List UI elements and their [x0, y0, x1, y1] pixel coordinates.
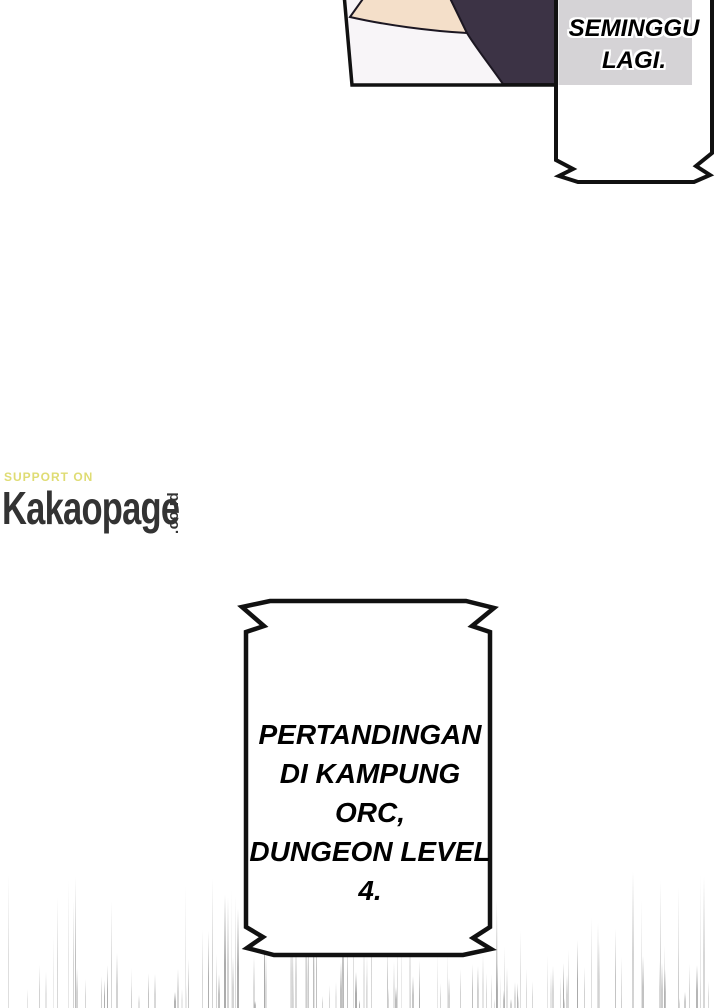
speech-line: DUNGEON LEVEL 4. [246, 832, 494, 910]
speech-box-main-text: PERTANDINGAN DI KAMPUNG ORC, DUNGEON LEV… [246, 715, 494, 910]
speech-line: SEMINGGU [556, 13, 712, 45]
speech-line: LAGI. [556, 45, 712, 77]
speech-line: PERTANDINGAN [246, 715, 494, 754]
speech-line: DI KAMPUNG ORC, [246, 754, 494, 832]
webtoon-page: SEMINGGU LAGI. PERTANDINGAN DI KAMPUNG O… [0, 0, 720, 1008]
top-panel [344, 0, 558, 85]
watermark: SUPPORT ON Kakaopage .co.id [2, 470, 202, 540]
watermark-brand-text: Kakaopage [2, 481, 179, 535]
watermark-domain-text: .co.id [165, 492, 182, 534]
speech-box-top-text: SEMINGGU LAGI. [556, 13, 712, 77]
